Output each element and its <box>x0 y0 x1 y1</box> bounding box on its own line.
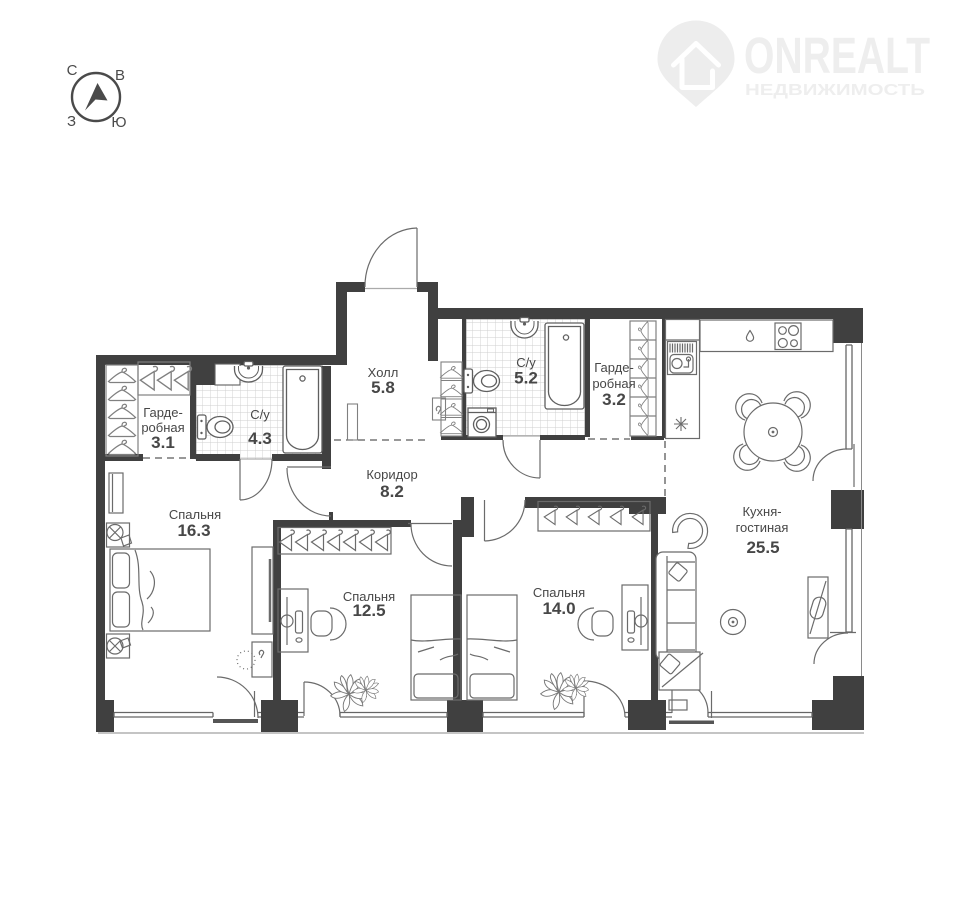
svg-text:Кухня-: Кухня- <box>742 504 781 519</box>
svg-text:Спальня: Спальня <box>169 507 221 522</box>
svg-text:5.8: 5.8 <box>371 378 395 397</box>
svg-text:В: В <box>115 67 125 84</box>
svg-text:Гарде-: Гарде- <box>143 405 183 420</box>
svg-text:Гарде-: Гарде- <box>594 360 634 375</box>
svg-text:Спальня: Спальня <box>533 585 585 600</box>
svg-text:Коридор: Коридор <box>366 467 417 482</box>
svg-text:4.3: 4.3 <box>248 429 272 448</box>
svg-text:3.1: 3.1 <box>151 433 175 452</box>
svg-text:5.2: 5.2 <box>514 369 538 388</box>
svg-text:25.5: 25.5 <box>746 538 779 557</box>
svg-text:12.5: 12.5 <box>352 601 385 620</box>
svg-text:С: С <box>67 62 78 79</box>
svg-text:ONREALT: ONREALT <box>744 27 930 84</box>
svg-text:Ю: Ю <box>111 114 126 131</box>
svg-text:3.2: 3.2 <box>602 390 626 409</box>
svg-text:С/у: С/у <box>250 407 270 422</box>
svg-text:14.0: 14.0 <box>542 599 575 618</box>
svg-text:гостиная: гостиная <box>736 520 789 535</box>
svg-text:З: З <box>67 113 76 130</box>
svg-text:8.2: 8.2 <box>380 482 404 501</box>
svg-text:16.3: 16.3 <box>177 521 210 540</box>
svg-text:робная: робная <box>592 376 635 391</box>
svg-text:НЕДВИЖИМОСТЬ: НЕДВИЖИМОСТЬ <box>745 82 925 99</box>
